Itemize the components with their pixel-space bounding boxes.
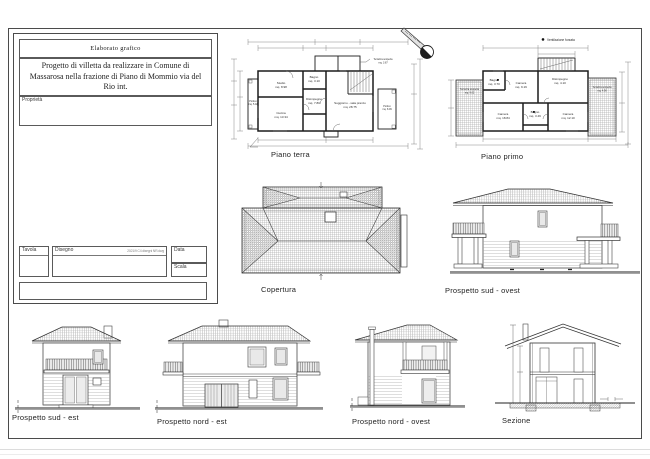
pp-legend: Ventilazione forzata [542, 38, 575, 42]
french-door [63, 375, 88, 405]
pt-dimensions [231, 39, 423, 149]
room-area: mq. 13.34 [274, 115, 288, 119]
disegno-box: Disegno 2021/9 C4 disegni NR.dwg [52, 246, 167, 277]
owner-box: Proprietà [19, 96, 212, 126]
piano-terra-drawing: Studio mq. 8.98 Bagno mq. 3.10 Disimpegn… [228, 34, 433, 152]
scala-box: Scala [171, 263, 207, 277]
scala-label: Scala [172, 264, 206, 270]
copertura-drawing [230, 184, 420, 288]
sezione-drawing [495, 319, 635, 415]
room-area: mq. 3.49 [529, 114, 541, 118]
title-block-header: Elaborato grafico [19, 39, 212, 58]
roof [453, 189, 613, 203]
room-area: mq. 9.19 [515, 85, 527, 89]
data-label: Data [172, 247, 206, 253]
room-area: mq. 4.90 [597, 90, 607, 93]
right-balcony [297, 362, 320, 375]
room-area: mq. 7.80 [308, 101, 320, 105]
legend-label: Ventilazione forzata [547, 38, 575, 42]
room-area: mq. 18.84 [496, 116, 510, 120]
tavola-box: Tavola [19, 246, 49, 277]
project-description: Progetto di villetta da realizzare in Co… [19, 58, 212, 96]
room-area: mq. 12.10 [561, 116, 575, 120]
room-area: mq. 8.09 [382, 108, 392, 111]
roof [168, 326, 310, 341]
prospetto-sud-est-label: Prospetto sud - est [12, 413, 79, 422]
siding [483, 239, 602, 268]
room-area: mq. 3.10 [308, 79, 320, 83]
pp-details [483, 58, 588, 131]
room-area: mq. 9.02 [465, 92, 475, 95]
sezione-label: Sezione [502, 416, 531, 425]
double-door [205, 384, 238, 407]
prospetto-nord-est-drawing [155, 320, 323, 416]
roof-surfaces [242, 187, 407, 273]
scan-artifact-line-2 [0, 454, 650, 455]
prospetto-sud-ovest-drawing [450, 186, 640, 278]
room-area: mq. 4.10 [554, 81, 566, 85]
piano-primo-label: Piano primo [481, 152, 523, 161]
prospetto-sud-ovest-label: Prospetto sud - ovest [445, 286, 520, 295]
piano-terra-label: Piano terra [271, 150, 310, 159]
scan-artifact-line [0, 449, 650, 450]
notes-box [19, 282, 207, 300]
file-note: 2021/9 C4 disegni NR.dwg [127, 249, 164, 253]
siding-left [43, 373, 63, 405]
lower-door [422, 379, 436, 403]
left-balcony [163, 362, 183, 375]
eaves-fascia [453, 203, 613, 206]
left-balcony [452, 223, 486, 268]
tavola-label: Tavola [20, 247, 48, 253]
prospetto-sud-est-drawing [15, 322, 140, 414]
room-area: mq. 28.75 [343, 105, 357, 109]
prospetto-nord-ovest-label: Prospetto nord - ovest [352, 417, 430, 426]
room-area: mq. 5.02 [248, 103, 258, 106]
prospetto-nord-ovest-drawing [350, 321, 465, 413]
siding-right [436, 375, 450, 405]
data-box: Data [171, 246, 207, 263]
ground [450, 270, 640, 274]
room-area: mq. 3.70 [488, 82, 500, 86]
copertura-label: Copertura [261, 285, 296, 294]
room-area: mq. 3.87 [378, 62, 388, 65]
room-area: mq. 8.98 [275, 85, 287, 89]
owner-label: Proprietà [20, 97, 211, 103]
title-block: Elaborato grafico Progetto di villetta d… [13, 33, 218, 304]
foundation [495, 403, 635, 411]
prospetto-nord-est-label: Prospetto nord - est [157, 417, 227, 426]
piano-primo-drawing: Ventilazione forzata Bagno mq. 3.70 C [448, 32, 640, 158]
